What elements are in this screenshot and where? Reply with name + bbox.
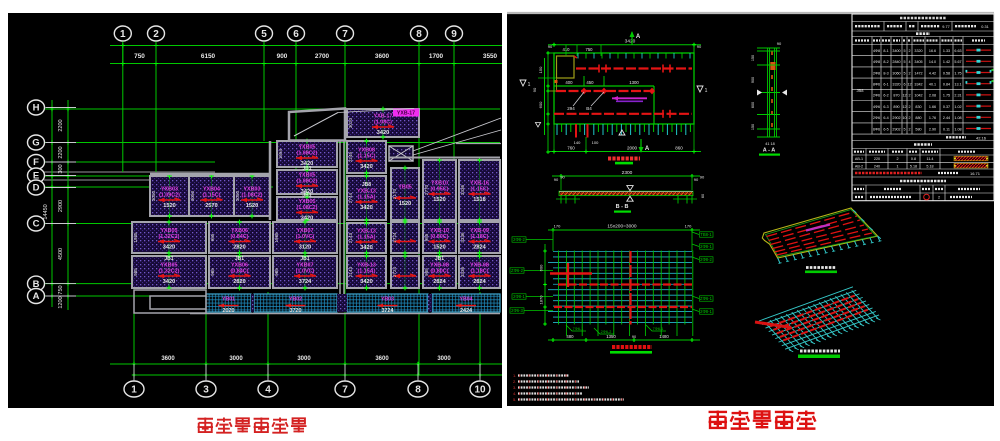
svg-text:240: 240 — [874, 164, 880, 168]
svg-text:(0.95C): (0.95C) — [431, 187, 449, 193]
svg-text:JB1: JB1 — [164, 256, 173, 262]
svg-text:(1.0VC): (1.0VC) — [296, 269, 315, 275]
svg-text:1520: 1520 — [399, 201, 411, 207]
svg-text:2824: 2824 — [473, 245, 486, 251]
svg-text:3600: 3600 — [375, 53, 390, 60]
svg-text:2824: 2824 — [433, 279, 446, 285]
svg-text:(0.84C): (0.84C) — [231, 269, 249, 275]
svg-text:(1.15A): (1.15A) — [358, 195, 376, 201]
svg-text:(1.08C2): (1.08C2) — [297, 179, 318, 185]
svg-text:2: 2 — [896, 157, 898, 161]
svg-text:JB8: JB8 — [857, 88, 865, 93]
svg-text:8-2: 8-2 — [883, 60, 888, 64]
svg-text:60: 60 — [701, 194, 705, 198]
svg-text:450: 450 — [586, 80, 594, 85]
svg-text:600: 600 — [751, 102, 755, 108]
svg-text:AB-1: AB-1 — [855, 157, 863, 161]
svg-text:2245: 2245 — [348, 151, 353, 162]
svg-text:13.1: 13.1 — [954, 83, 961, 87]
svg-text:1: 1 — [896, 164, 898, 168]
svg-text:0.8: 0.8 — [911, 157, 916, 161]
svg-text:3050: 3050 — [190, 190, 195, 201]
svg-text:985: 985 — [133, 268, 138, 276]
svg-text:5.18: 5.18 — [910, 164, 917, 168]
svg-text:2820: 2820 — [233, 279, 245, 285]
svg-text:3336: 3336 — [460, 232, 465, 243]
svg-text:5: 5 — [261, 29, 267, 40]
svg-text:3120: 3120 — [299, 245, 311, 251]
svg-text:A: A — [645, 146, 650, 152]
svg-text:2200: 2200 — [58, 119, 64, 131]
svg-text:11.4: 11.4 — [927, 157, 934, 161]
svg-text:3336: 3336 — [460, 184, 465, 195]
svg-text:890: 890 — [893, 105, 899, 109]
svg-text:2200: 2200 — [58, 146, 64, 158]
svg-text:12: 12 — [902, 105, 906, 109]
svg-text:3405: 3405 — [914, 60, 922, 64]
svg-text:2.08: 2.08 — [929, 94, 936, 98]
svg-text:JB1: JB1 — [302, 166, 311, 172]
svg-text:1042: 1042 — [914, 94, 922, 98]
svg-text:220: 220 — [874, 157, 880, 161]
svg-text:580: 580 — [915, 127, 921, 131]
svg-text:4.42: 4.42 — [929, 71, 936, 75]
svg-text:4.: 4. — [513, 391, 516, 396]
svg-text:(1.09C2): (1.09C2) — [159, 193, 180, 199]
svg-text:JB8: JB8 — [362, 182, 371, 188]
svg-text:3420: 3420 — [625, 39, 636, 45]
svg-text:2824: 2824 — [473, 279, 486, 285]
svg-text:750: 750 — [58, 285, 64, 294]
svg-text:3420: 3420 — [360, 205, 372, 211]
svg-text:(1.15C): (1.15C) — [471, 187, 489, 193]
svg-text:ZΦ6-2: ZΦ6-2 — [511, 268, 524, 273]
svg-text:6150: 6150 — [201, 53, 216, 60]
svg-text:JB1: JB1 — [302, 193, 311, 199]
svg-text:10: 10 — [902, 116, 906, 120]
svg-text:16.71: 16.71 — [970, 171, 981, 176]
svg-text:2Φ6-3: 2Φ6-3 — [511, 308, 523, 313]
svg-text:5.67: 5.67 — [954, 60, 961, 64]
svg-text:3342: 3342 — [914, 83, 922, 87]
svg-text:1.76: 1.76 — [929, 116, 936, 120]
svg-text:2902: 2902 — [892, 116, 900, 120]
svg-text:2Φ6-2: 2Φ6-2 — [601, 330, 612, 334]
svg-text:6-3: 6-3 — [883, 105, 888, 109]
svg-text:90: 90 — [554, 177, 559, 182]
svg-text:985: 985 — [424, 233, 429, 241]
svg-text:1985: 1985 — [133, 232, 138, 243]
svg-text:(1.15A): (1.15A) — [358, 235, 376, 241]
svg-text:1: 1 — [528, 82, 531, 88]
svg-text:(1.18C): (1.18C) — [471, 234, 489, 240]
svg-text:3320: 3320 — [914, 49, 922, 53]
svg-text:YB04: YB04 — [460, 297, 473, 303]
svg-text:5: 5 — [903, 71, 905, 75]
svg-text:2820: 2820 — [233, 245, 245, 251]
svg-text:2902: 2902 — [892, 127, 900, 131]
svg-text:3336: 3336 — [460, 266, 465, 277]
svg-text:2: 2 — [908, 49, 910, 53]
svg-text:150: 150 — [751, 124, 755, 130]
svg-text:8-3: 8-3 — [883, 71, 888, 75]
svg-text:42.16: 42.16 — [976, 135, 987, 140]
svg-text:2900: 2900 — [58, 200, 64, 212]
svg-text:(0.84C): (0.84C) — [231, 234, 249, 240]
svg-text:1: 1 — [131, 385, 137, 396]
svg-text:7Φ6-1: 7Φ6-1 — [573, 327, 584, 331]
svg-text:TB8-1: TB8-1 — [700, 232, 712, 237]
svg-text:100: 100 — [592, 140, 599, 145]
svg-text:2Φ8-1: 2Φ8-1 — [700, 309, 712, 314]
svg-text:2724: 2724 — [392, 266, 397, 277]
svg-text:AB-2: AB-2 — [855, 164, 863, 168]
svg-text:6-4: 6-4 — [883, 116, 888, 120]
svg-text:5.18: 5.18 — [926, 164, 933, 168]
svg-text:1520: 1520 — [433, 245, 445, 251]
svg-text:6: 6 — [293, 29, 299, 40]
svg-text:760: 760 — [567, 146, 575, 151]
svg-text:40.1: 40.1 — [929, 83, 936, 87]
svg-text:2170: 2170 — [392, 188, 397, 199]
svg-text:C: C — [33, 219, 40, 230]
svg-text:1520: 1520 — [163, 203, 175, 209]
svg-text:3724: 3724 — [299, 279, 312, 285]
svg-text:985: 985 — [424, 268, 429, 276]
svg-text:JB1: JB1 — [435, 256, 444, 262]
svg-text:0.11: 0.11 — [943, 127, 950, 131]
svg-text:D: D — [33, 183, 40, 194]
svg-text:2: 2 — [908, 127, 910, 131]
svg-text:2724: 2724 — [392, 232, 397, 243]
svg-text:750: 750 — [134, 53, 145, 60]
svg-text:5: 5 — [903, 60, 905, 64]
svg-text:4: 4 — [265, 385, 271, 396]
svg-text:4Φ8: 4Φ8 — [873, 49, 880, 53]
svg-text:1: 1 — [120, 29, 126, 40]
svg-text:2: 2 — [153, 29, 159, 40]
svg-text:A: A — [636, 34, 641, 40]
svg-text:6-1: 6-1 — [883, 83, 888, 87]
svg-text:6Φ6: 6Φ6 — [873, 127, 880, 131]
svg-text:B - B: B - B — [616, 204, 629, 210]
svg-text:2143: 2143 — [348, 232, 353, 243]
svg-text:2: 2 — [908, 105, 910, 109]
svg-text:3420: 3420 — [301, 216, 313, 222]
svg-text:5: 5 — [903, 49, 905, 53]
svg-text:90: 90 — [777, 41, 782, 46]
svg-text:3600: 3600 — [375, 356, 389, 362]
svg-text:3420: 3420 — [377, 130, 389, 136]
svg-text:90: 90 — [697, 44, 702, 49]
svg-text:(1.18C): (1.18C) — [471, 269, 489, 275]
svg-text:3550: 3550 — [483, 53, 498, 60]
svg-text:3420: 3420 — [163, 279, 175, 285]
svg-text:3420: 3420 — [360, 279, 372, 285]
svg-text:2.: 2. — [513, 379, 516, 384]
svg-text:900: 900 — [751, 77, 755, 83]
svg-text:9: 9 — [451, 29, 457, 40]
svg-text:300: 300 — [58, 164, 64, 173]
svg-text:4Φ6: 4Φ6 — [873, 105, 880, 109]
svg-text:400: 400 — [565, 80, 573, 85]
svg-text:90: 90 — [560, 175, 565, 180]
svg-text:(1.15C): (1.15C) — [358, 154, 376, 160]
svg-text:1.66: 1.66 — [929, 105, 936, 109]
svg-text:3020: 3020 — [348, 117, 353, 128]
svg-text:6.63: 6.63 — [954, 49, 961, 53]
svg-text:5.: 5. — [513, 397, 516, 402]
svg-text:(1.15C): (1.15C) — [203, 193, 221, 199]
svg-text:1518: 1518 — [473, 197, 485, 203]
svg-text:1350: 1350 — [606, 334, 616, 339]
svg-text:0.31: 0.31 — [981, 25, 988, 29]
svg-text:2570: 2570 — [205, 203, 217, 209]
svg-text:8-1: 8-1 — [883, 49, 888, 53]
svg-text:985: 985 — [210, 233, 215, 241]
svg-text:9.77: 9.77 — [942, 25, 949, 29]
svg-text:830: 830 — [915, 105, 921, 109]
svg-text:2: 2 — [908, 116, 910, 120]
svg-text:3420: 3420 — [360, 164, 372, 170]
svg-text:3600: 3600 — [161, 356, 175, 362]
svg-text:5: 5 — [903, 127, 905, 131]
svg-text:2: 2 — [938, 196, 940, 200]
svg-text:(1.15A): (1.15A) — [358, 269, 376, 275]
svg-text:(1.32C2): (1.32C2) — [159, 234, 180, 240]
svg-text:A: A — [33, 291, 40, 302]
svg-text:2Φ8-2: 2Φ8-2 — [513, 237, 525, 242]
svg-text:6-5: 6-5 — [883, 127, 888, 131]
svg-text:2143: 2143 — [348, 266, 353, 277]
svg-text:90: 90 — [548, 44, 553, 49]
svg-text:600: 600 — [538, 101, 543, 108]
svg-text:(1.32C2): (1.32C2) — [159, 269, 180, 275]
svg-text:F: F — [33, 157, 39, 168]
svg-text:(1.08C2): (1.08C2) — [297, 205, 318, 211]
svg-text:0.58: 0.58 — [943, 71, 950, 75]
svg-text:2Φ8-1: 2Φ8-1 — [700, 244, 712, 249]
svg-text:985: 985 — [274, 268, 279, 276]
svg-text:1.: 1. — [513, 373, 516, 378]
svg-text:1870: 1870 — [539, 295, 544, 305]
svg-text:14450: 14450 — [43, 204, 49, 219]
svg-text:1520: 1520 — [246, 203, 258, 209]
svg-text:(1.0VC): (1.0VC) — [296, 234, 315, 240]
svg-text:880: 880 — [915, 116, 921, 120]
svg-text:A - A: A - A — [763, 148, 775, 154]
svg-text:6-2: 6-2 — [883, 94, 888, 98]
svg-text:2Φ6: 2Φ6 — [873, 116, 880, 120]
svg-text:2.31: 2.31 — [954, 94, 961, 98]
svg-text:150: 150 — [538, 66, 543, 73]
svg-text:140: 140 — [574, 140, 581, 145]
svg-text:480: 480 — [566, 334, 574, 339]
svg-text:3400: 3400 — [892, 49, 900, 53]
svg-text:2770: 2770 — [424, 184, 429, 195]
svg-text:0.37: 0.37 — [943, 105, 950, 109]
svg-text:1.75: 1.75 — [954, 71, 961, 75]
svg-text:2Φ6: 2Φ6 — [873, 94, 880, 98]
svg-text:4500: 4500 — [58, 248, 64, 260]
svg-text:2000: 2000 — [627, 146, 638, 151]
svg-text:(0.80C): (0.80C) — [431, 269, 449, 275]
svg-text:YB05: YB05 — [398, 185, 412, 191]
svg-text:150: 150 — [751, 55, 755, 61]
svg-text:2Φ8-1: 2Φ8-1 — [513, 294, 525, 299]
svg-text:16.6: 16.6 — [929, 49, 936, 53]
svg-text:1200: 1200 — [58, 296, 64, 308]
svg-text:8Φ6: 8Φ6 — [873, 83, 880, 87]
svg-text:3.: 3. — [513, 385, 516, 390]
svg-text:B4: B4 — [586, 106, 592, 111]
svg-text:JB1: JB1 — [300, 256, 309, 262]
svg-text:90: 90 — [700, 175, 705, 180]
svg-text:2300: 2300 — [622, 170, 633, 176]
svg-text:(1.08C2): (1.08C2) — [297, 151, 318, 157]
svg-text:1.42: 1.42 — [943, 60, 950, 64]
svg-text:3060: 3060 — [892, 71, 900, 75]
svg-text:2: 2 — [908, 71, 910, 75]
svg-text:1985: 1985 — [274, 232, 279, 243]
svg-text:3: 3 — [203, 385, 209, 396]
svg-text:3000: 3000 — [297, 356, 311, 362]
svg-text:750: 750 — [586, 47, 594, 52]
svg-text:1300: 1300 — [629, 80, 639, 85]
svg-text:1.02: 1.02 — [954, 105, 961, 109]
svg-text:8: 8 — [416, 29, 422, 40]
svg-text:YB01: YB01 — [222, 297, 235, 303]
svg-text:90: 90 — [632, 335, 636, 339]
svg-text:1: 1 — [705, 88, 708, 94]
svg-text:1.75: 1.75 — [943, 94, 950, 98]
svg-text:1520: 1520 — [433, 197, 445, 203]
svg-text:90: 90 — [532, 87, 537, 92]
svg-text:3000: 3000 — [437, 356, 451, 362]
svg-text:7: 7 — [342, 29, 348, 40]
svg-text:900: 900 — [277, 53, 288, 60]
svg-text:4Φ8: 4Φ8 — [873, 60, 880, 64]
svg-text:JB1: JB1 — [235, 256, 244, 262]
svg-text:3050: 3050 — [151, 190, 156, 201]
svg-text:H: H — [33, 103, 40, 114]
svg-text:7Φ6-1: 7Φ6-1 — [653, 327, 664, 331]
svg-text:90: 90 — [694, 177, 699, 182]
svg-text:YB03: YB03 — [381, 297, 394, 303]
svg-text:(1.08C): (1.08C) — [374, 120, 392, 126]
svg-text:2840: 2840 — [892, 60, 900, 64]
svg-text:2.90: 2.90 — [929, 127, 936, 131]
svg-text:(1.08C2): (1.08C2) — [242, 193, 263, 199]
svg-text:YB02: YB02 — [289, 297, 302, 303]
svg-text:1.33: 1.33 — [943, 49, 950, 53]
svg-text:YXB-17: YXB-17 — [397, 111, 415, 117]
svg-text:41 18: 41 18 — [765, 142, 775, 146]
svg-text:10: 10 — [474, 385, 486, 396]
svg-text:1.08: 1.08 — [954, 127, 961, 131]
svg-text:14.0: 14.0 — [929, 60, 936, 64]
svg-text:3050: 3050 — [235, 190, 240, 201]
svg-text:985: 985 — [210, 268, 215, 276]
svg-text:4: 4 — [908, 60, 910, 64]
svg-text:170: 170 — [554, 224, 561, 229]
svg-text:6: 6 — [903, 83, 905, 87]
svg-text:2700: 2700 — [315, 53, 330, 60]
svg-text:2744: 2744 — [348, 192, 353, 203]
svg-text:12: 12 — [907, 83, 911, 87]
svg-text:870: 870 — [893, 94, 899, 98]
svg-text:3420: 3420 — [163, 245, 175, 251]
svg-text:1554: 1554 — [278, 148, 283, 159]
svg-text:3420: 3420 — [360, 245, 372, 251]
svg-text:ZΦ6-1: ZΦ6-1 — [700, 296, 713, 301]
svg-text:2Φ8-2: 2Φ8-2 — [700, 257, 712, 262]
svg-text:1700: 1700 — [429, 53, 444, 60]
svg-text:3320: 3320 — [892, 83, 900, 87]
svg-text:2Φ8: 2Φ8 — [873, 71, 880, 75]
svg-text:1472: 1472 — [914, 71, 922, 75]
svg-text:294: 294 — [567, 106, 575, 111]
svg-text:G: G — [32, 138, 39, 149]
svg-text:3000: 3000 — [229, 356, 243, 362]
svg-text:15x200=3000: 15x200=3000 — [607, 224, 637, 230]
svg-text:7: 7 — [342, 385, 348, 396]
svg-text:8: 8 — [415, 385, 421, 396]
svg-text:600: 600 — [539, 264, 544, 271]
svg-text:170: 170 — [685, 224, 692, 229]
svg-text:12: 12 — [902, 94, 906, 98]
svg-text:(0.80C): (0.80C) — [431, 234, 449, 240]
svg-text:2: 2 — [908, 94, 910, 98]
svg-text:860: 860 — [675, 146, 683, 151]
svg-text:1.08: 1.08 — [954, 116, 961, 120]
svg-text:2.44: 2.44 — [943, 116, 950, 120]
svg-text:0.84: 0.84 — [943, 83, 950, 87]
svg-text:1480: 1480 — [659, 334, 669, 339]
